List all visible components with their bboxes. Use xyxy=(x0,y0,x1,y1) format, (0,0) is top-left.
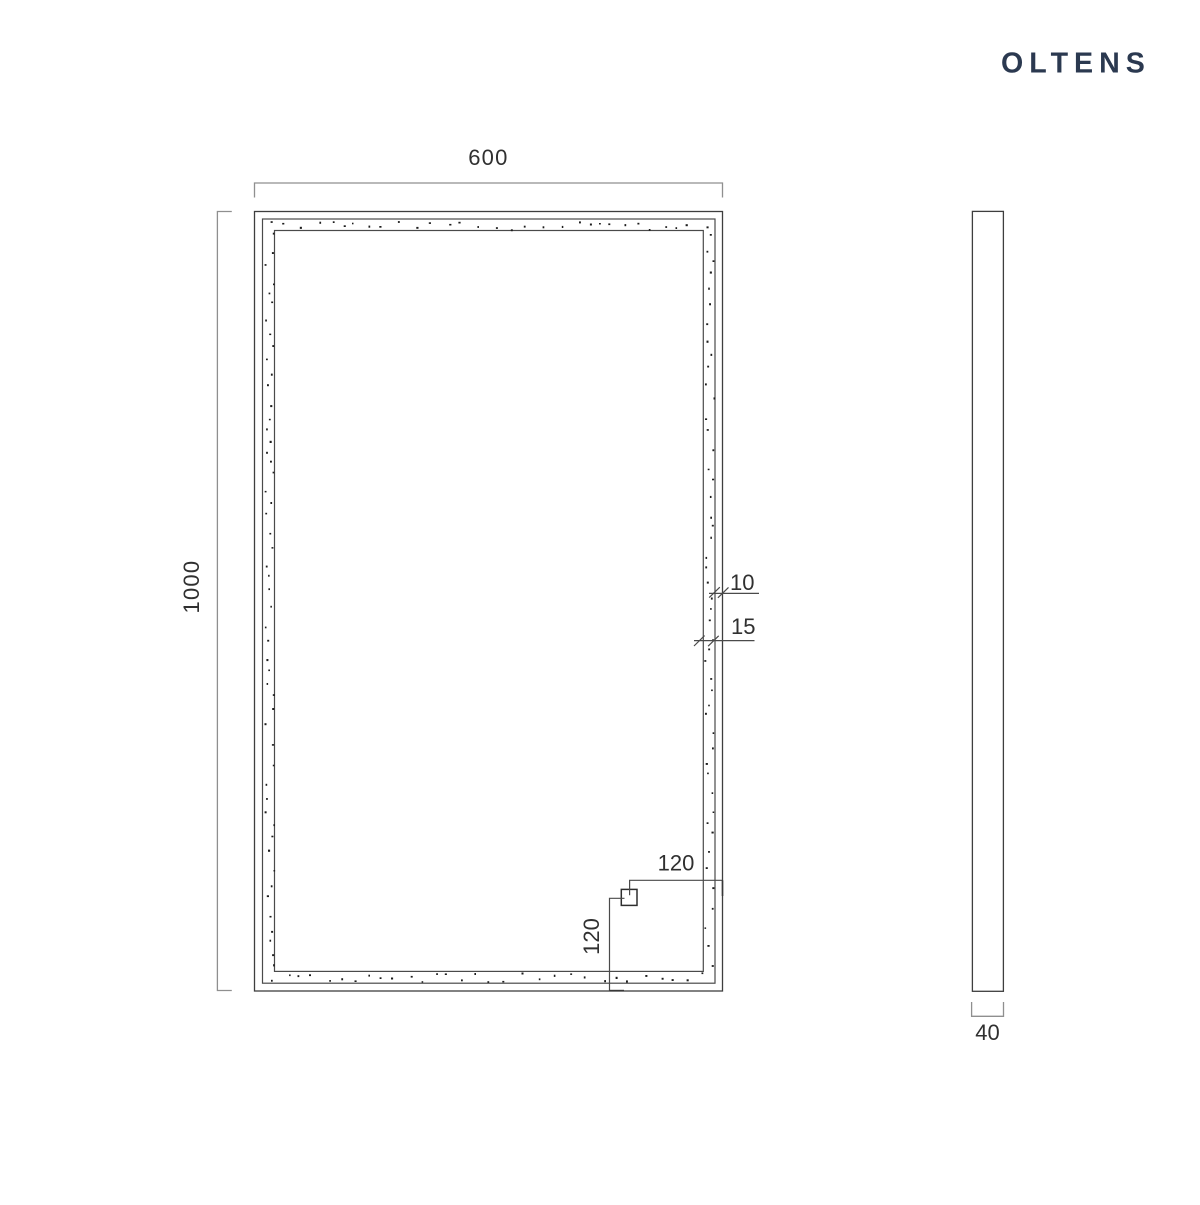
svg-text:40: 40 xyxy=(975,1020,999,1045)
svg-text:600: 600 xyxy=(468,145,508,170)
svg-text:120: 120 xyxy=(579,918,604,955)
svg-text:120: 120 xyxy=(658,850,695,875)
svg-text:1000: 1000 xyxy=(179,560,204,614)
svg-text:10: 10 xyxy=(730,570,754,595)
svg-text:15: 15 xyxy=(731,614,755,639)
svg-text:OLTENS: OLTENS xyxy=(1001,47,1151,79)
